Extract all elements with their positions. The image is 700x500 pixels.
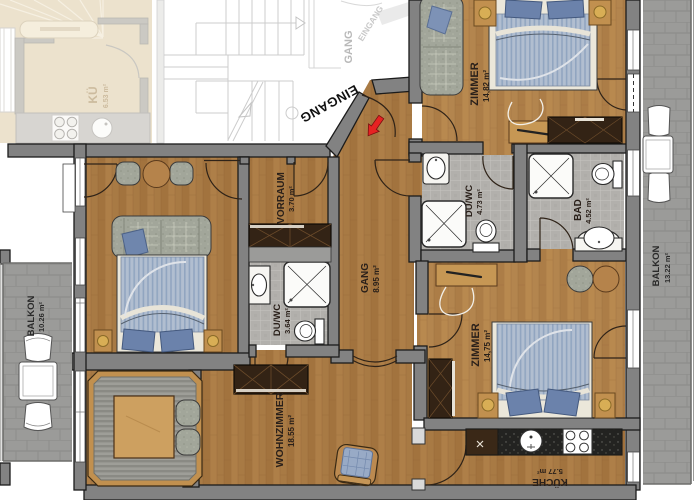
- svg-text:WOHNZIMMER: WOHNZIMMER: [274, 392, 286, 467]
- svg-text:BALKON: BALKON: [651, 246, 662, 287]
- svg-text:KÜ: KÜ: [85, 86, 100, 103]
- svg-text:6.53 m²: 6.53 m²: [103, 83, 110, 108]
- svg-text:3.64 m²: 3.64 m²: [283, 308, 292, 334]
- svg-text:4.73 m²: 4.73 m²: [475, 189, 484, 215]
- svg-text:18.55 m²: 18.55 m²: [287, 415, 296, 447]
- svg-text:GANG: GANG: [360, 263, 371, 293]
- svg-text:10.26 m²: 10.26 m²: [37, 301, 46, 332]
- svg-text:3.70 m²: 3.70 m²: [287, 186, 296, 212]
- svg-text:14,82 m²: 14,82 m²: [482, 70, 491, 102]
- svg-text:14,75 m²: 14,75 m²: [483, 330, 492, 362]
- svg-text:ZIMMER: ZIMMER: [470, 323, 482, 366]
- svg-text:BAD: BAD: [573, 199, 584, 221]
- svg-text:DU/WC: DU/WC: [272, 304, 283, 336]
- svg-text:KÜCHE: KÜCHE: [532, 476, 568, 489]
- svg-text:VORRAUM: VORRAUM: [276, 172, 287, 224]
- svg-text:GANG: GANG: [343, 31, 355, 64]
- svg-text:BALKON: BALKON: [26, 296, 37, 337]
- svg-text:5.77 m²: 5.77 m²: [537, 467, 563, 476]
- svg-text:4.52 m²: 4.52 m²: [584, 198, 593, 224]
- svg-text:ZIMMER: ZIMMER: [469, 62, 481, 105]
- svg-text:8.95 m²: 8.95 m²: [372, 265, 381, 293]
- svg-text:DU/WC: DU/WC: [464, 185, 475, 217]
- svg-text:13.22 m²: 13.22 m²: [663, 252, 672, 283]
